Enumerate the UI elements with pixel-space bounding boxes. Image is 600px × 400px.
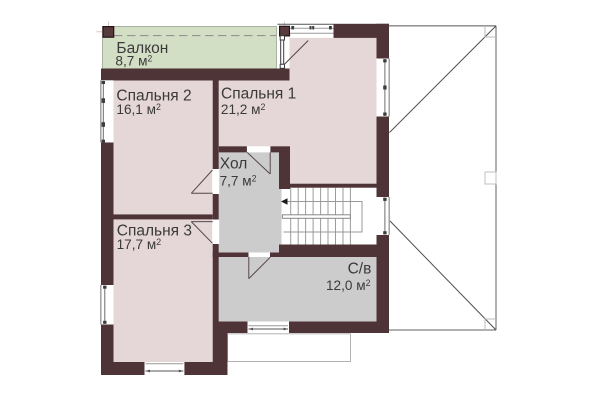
svg-text:Спальня 1: Спальня 1: [221, 85, 296, 102]
svg-text:16,1 м2: 16,1 м2: [116, 102, 161, 117]
svg-text:12,0 м2: 12,0 м2: [326, 278, 371, 293]
svg-text:7,7 м2: 7,7 м2: [220, 173, 257, 188]
svg-text:8,7 м2: 8,7 м2: [115, 54, 152, 69]
svg-text:21,2 м2: 21,2 м2: [221, 102, 266, 117]
svg-text:17,7 м2: 17,7 м2: [117, 237, 162, 252]
svg-text:Хол: Хол: [220, 156, 248, 173]
svg-text:С/в: С/в: [348, 260, 372, 277]
